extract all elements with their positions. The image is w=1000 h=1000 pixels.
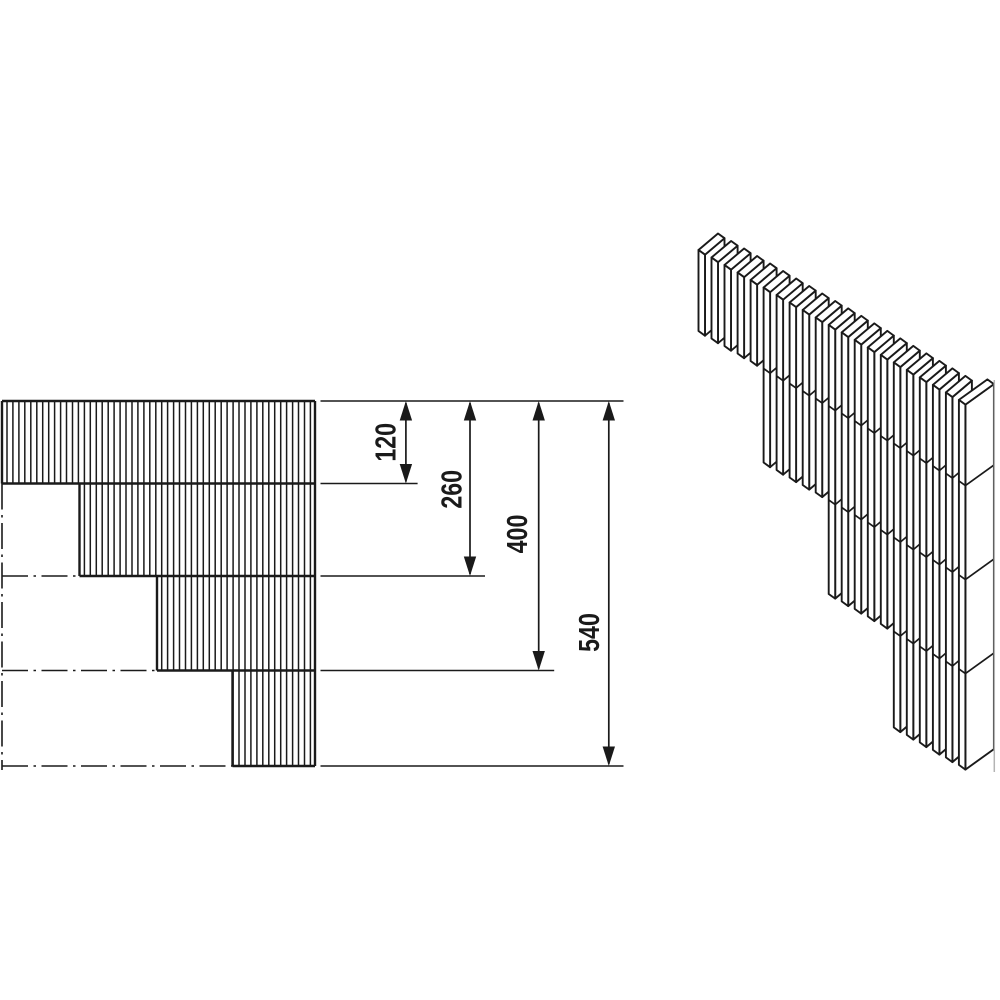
svg-text:120: 120 — [369, 423, 402, 462]
svg-text:400: 400 — [500, 515, 533, 554]
svg-text:260: 260 — [435, 470, 468, 509]
svg-text:540: 540 — [573, 613, 606, 652]
